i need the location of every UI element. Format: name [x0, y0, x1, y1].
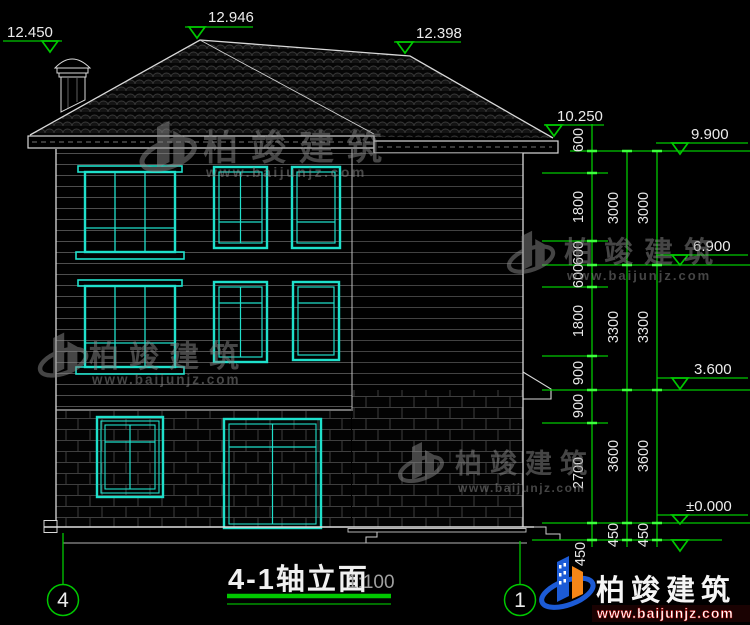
watermark-url: www.baijunjz.com: [457, 481, 586, 495]
elevation-marker-3600: 3.600: [657, 361, 748, 389]
watermark-url: www.baijunjz.com: [91, 372, 241, 387]
elevation-label: 3.600: [694, 361, 732, 378]
dim-label: 900: [571, 361, 587, 385]
elevation-label: 10.250: [557, 108, 603, 125]
watermark-name: 柏竣建筑: [89, 340, 249, 374]
elevation-label: 12.398: [416, 25, 462, 42]
brand-name: 柏竣建筑: [596, 573, 736, 607]
elevation-marker-rear-ridge: 12.398: [394, 25, 462, 53]
elevation-marker-main-ridge: 12.946: [185, 9, 254, 38]
steps-left: [354, 532, 377, 543]
title-block: 4-1轴立面 1:100: [227, 562, 395, 604]
chimney-cap: [55, 59, 90, 68]
axis-number: 1: [514, 589, 526, 612]
dim-label: 600: [571, 128, 587, 152]
drawing-scale: 1:100: [347, 572, 395, 593]
axis-bubble-left: 4: [48, 585, 79, 616]
axis-number: 4: [57, 589, 69, 612]
rear-wing-siding: [352, 153, 523, 390]
front-facade-brick: [56, 411, 351, 527]
elevation-label: 12.946: [208, 9, 254, 26]
watermark-right: 柏竣建筑 www.baijunjz.com: [506, 231, 724, 283]
dim-label: 3300: [636, 311, 652, 343]
step-slab: [348, 529, 526, 533]
dim-label: 1800: [571, 191, 587, 223]
watermark-url: www.baijunjz.com: [205, 164, 367, 180]
elevation-marker-chimney: 12.450: [3, 24, 62, 52]
dim-label: 3600: [606, 440, 622, 472]
dim-label: 3000: [636, 192, 652, 224]
side-ledge-3600: [523, 372, 551, 399]
elevation-label: ±0.000: [686, 498, 732, 515]
dim-label: 1800: [571, 305, 587, 337]
dim-label: 450: [636, 523, 652, 547]
elevation-label: 12.450: [7, 24, 53, 41]
watermark-name: 柏竣建筑: [564, 235, 724, 269]
steps-right: [527, 527, 574, 540]
brand-url: www.baijunjz.com: [596, 605, 734, 621]
dimension-labels: 600 1800 600 600 1800 900 900 2700 450 3…: [571, 128, 652, 566]
elevation-marker-9900: 9.900: [656, 126, 748, 154]
rear-eave-fascia: [374, 141, 558, 153]
dim-label: 450: [606, 523, 622, 547]
dim-label: 3300: [606, 311, 622, 343]
elevation-marker-minus450-triangle: [672, 540, 688, 551]
elevation-label: 9.900: [691, 126, 729, 143]
dim-label: 450: [573, 542, 589, 566]
cad-elevation-drawing: 12.450 12.946 12.398 10.250 9.900 6.900: [0, 0, 750, 625]
watermark-name: 柏竣建筑: [203, 128, 395, 168]
dim-label: 3600: [636, 440, 652, 472]
dim-label: 3000: [606, 192, 622, 224]
drawing-svg: 12.450 12.946 12.398 10.250 9.900 6.900: [0, 0, 750, 625]
brand-block: 柏竣建筑 www.baijunjz.com: [538, 556, 750, 622]
elevation-marker-ground: ±0.000: [657, 498, 748, 524]
watermark-name: 柏竣建筑: [455, 448, 595, 479]
watermark-url: www.baijunjz.com: [566, 268, 711, 283]
axis-bubble-right: 1: [505, 585, 536, 616]
dim-label: 900: [571, 394, 587, 418]
